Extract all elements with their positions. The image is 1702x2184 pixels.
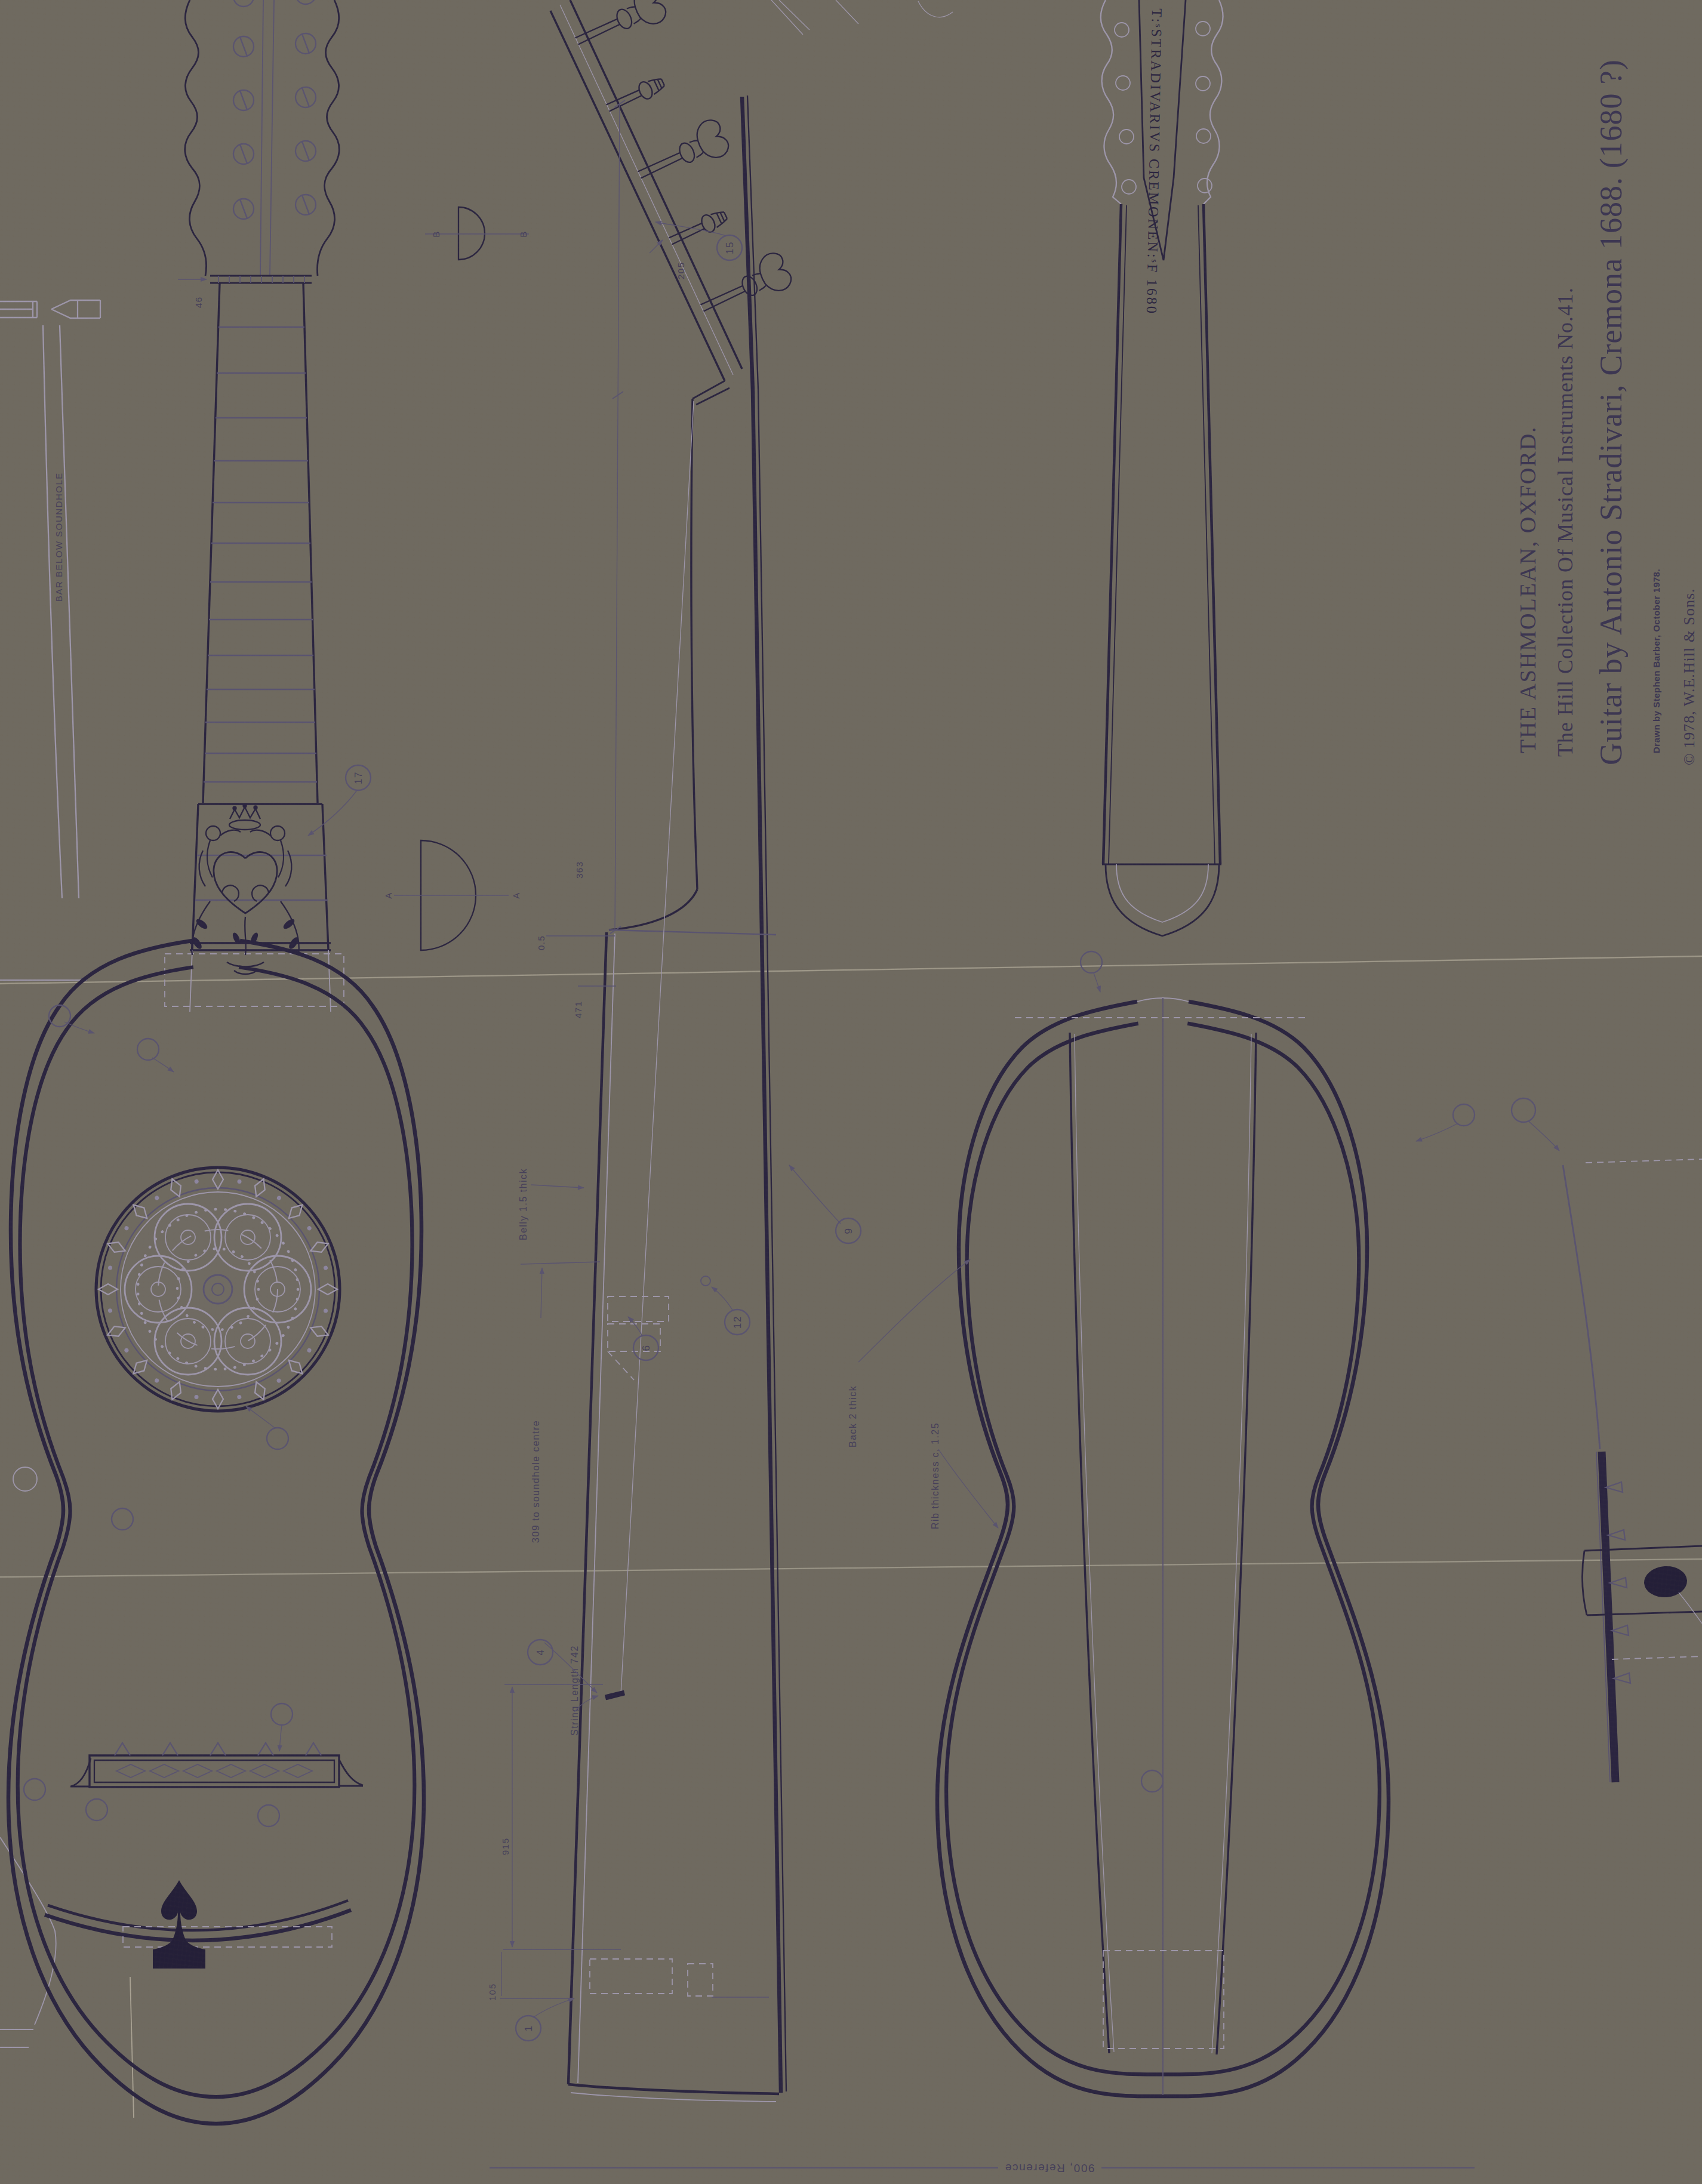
section-b: B B (425, 207, 529, 260)
rosette (96, 1168, 340, 1411)
soundhole-centre-label: 309 to soundhole centre (531, 1420, 541, 1543)
bridge (70, 1743, 363, 1787)
dim-915: 915 (500, 1837, 510, 1855)
string-length-label: String Length 742 (570, 1645, 580, 1736)
callouts: 15 17 6 12 4 1 (24, 222, 1559, 2041)
spade-ornament (123, 1880, 332, 1969)
svg-text:12: 12 (732, 1316, 743, 1329)
dim-105: 105 (487, 1983, 497, 2001)
side-dimensions: 363 0.5 471 309 to soundhole centre Bell… (487, 100, 625, 2001)
bar-below-soundhole-label: BAR BELOW SOUNDHOLE (54, 472, 64, 602)
callout-15: 15 (655, 222, 742, 260)
head-dim: 205 (676, 261, 686, 279)
callout-1: 1 (516, 1998, 574, 2041)
front-headstock: 46 (178, 0, 339, 308)
back-body (937, 998, 1389, 2096)
section-b-label-left: B (431, 230, 441, 238)
reference-label: 900, Reference (1005, 2162, 1095, 2174)
drawing-sheet-photo: BAR BELOW SOUNDHOLE 46 (0, 0, 1702, 2184)
callout-6: 6 (628, 1317, 658, 1360)
collection-title: The Hill Collection Of Musical Instrumen… (1553, 287, 1577, 757)
museum-title: THE ASHMOLEAN, OXFORD. (1515, 426, 1540, 753)
back-thick-label: Back 2 thick (848, 1385, 858, 1447)
svg-text:15: 15 (724, 241, 735, 254)
svg-text:17: 17 (353, 771, 364, 784)
fretboard (203, 283, 318, 803)
svg-text:4: 4 (535, 1649, 546, 1656)
side-view: 205 363 0.5 (487, 0, 953, 2102)
section-a: A A (383, 840, 521, 950)
peg-holes (233, 0, 316, 219)
front-body (8, 941, 424, 2124)
credit-line: Drawn by Stephen Barber, October 1978. (1651, 569, 1661, 753)
main-title: Guitar by Antonio Stradivari, Cremona 16… (1594, 59, 1629, 765)
section-b-label-right: B (518, 230, 528, 238)
dim-471: 471 (573, 1000, 583, 1018)
side-internal-blocks (590, 1296, 713, 1996)
svg-text:9: 9 (843, 1228, 854, 1234)
reference-line: 900, Reference (490, 2162, 1475, 2174)
section-a-label-right: A (511, 892, 521, 899)
bar-detail: BAR BELOW SOUNDHOLE (0, 300, 100, 2047)
back-view: T:ˢSTRADIVARIVS CREMONEN:ˢF 1680 Back 2 … (848, 0, 1389, 2096)
title-block: THE ASHMOLEAN, OXFORD. The Hill Collecti… (1515, 59, 1698, 765)
copyright-line: © 1978, W.E.Hill & Sons. (1681, 588, 1698, 765)
dim-363: 363 (574, 861, 584, 879)
technical-drawing: BAR BELOW SOUNDHOLE 46 (0, 0, 1702, 2184)
nut-width-dim: 46 (193, 296, 204, 308)
svg-text:1: 1 (523, 2025, 534, 2032)
bridge-profile-detail (1563, 1159, 1702, 1782)
rib-thickness-label: Rib thickness c. 1.25 (930, 1422, 940, 1529)
belly-thick-label: Belly 1.5 thick (518, 1168, 528, 1240)
headstock-inscription: T:ˢSTRADIVARIVS CREMONEN:ˢF 1680 (1144, 8, 1165, 315)
callout-12: 12 (701, 1276, 750, 1335)
dim-05: 0.5 (536, 935, 546, 950)
callout-9: 9 (789, 1165, 861, 1243)
section-a-label-left: A (383, 892, 393, 899)
paper-creases (0, 956, 1702, 2118)
bridge-inlay (116, 1764, 312, 1778)
svg-text:6: 6 (641, 1345, 652, 1351)
